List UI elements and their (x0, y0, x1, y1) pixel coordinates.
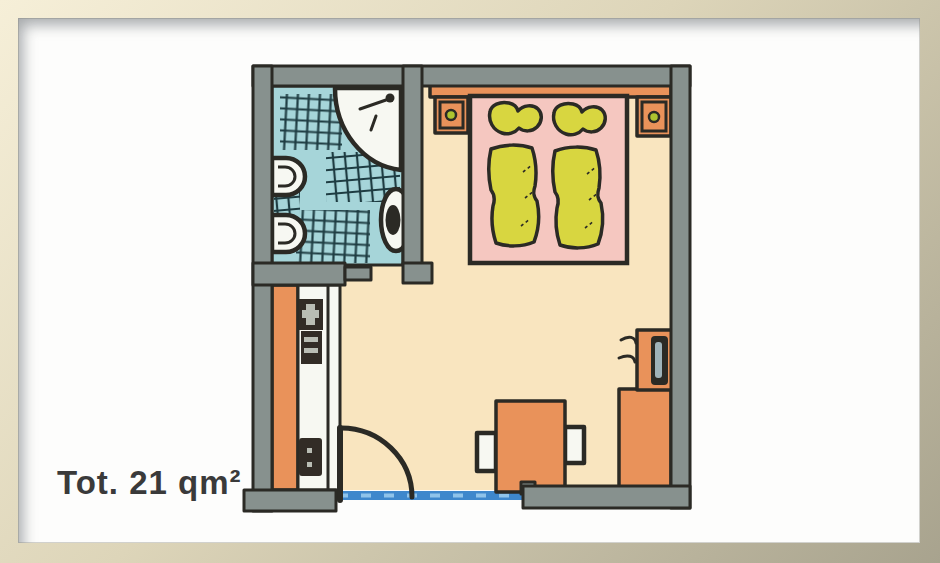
wall-right (671, 66, 690, 508)
wall-bottom-right (523, 486, 690, 508)
bathroom-wall-bottom (253, 263, 345, 285)
wall-top (253, 66, 690, 86)
tile-hatch (280, 94, 342, 150)
bedside-lamp-right (649, 112, 659, 122)
wardrobe-item (301, 331, 322, 364)
armchair-seat (496, 401, 565, 492)
pillow-right (554, 103, 606, 134)
pillow-left (490, 102, 542, 133)
wardrobe (272, 285, 298, 490)
nightstand-left (435, 97, 468, 133)
framed-floor-plan-picture: Tot. 21 qm² (0, 0, 940, 563)
bidet (272, 158, 305, 195)
wall-left (253, 66, 272, 511)
tv-screen (655, 342, 662, 378)
bathroom-door-stub (345, 267, 371, 280)
wall-bottom-left (244, 490, 336, 511)
sink-basin (386, 205, 401, 235)
tile-hatch (296, 210, 370, 263)
armchair-armrest-left (477, 433, 496, 471)
bathroom-wall-foot (403, 263, 432, 283)
luggage-rack (299, 438, 322, 476)
bedside-lamp-left (446, 110, 456, 120)
duvet-right (553, 147, 603, 248)
bathroom-wall-right (403, 66, 422, 265)
nightstand-right (637, 97, 671, 136)
caption-text: Tot. 21 qm² (57, 464, 242, 501)
minibar (299, 299, 323, 330)
armchair-armrest-right (565, 427, 584, 463)
toilet (272, 215, 305, 252)
tv-cabinet (619, 389, 671, 488)
duvet-left (489, 145, 539, 246)
floor-plan-svg: Tot. 21 qm² (0, 0, 940, 563)
